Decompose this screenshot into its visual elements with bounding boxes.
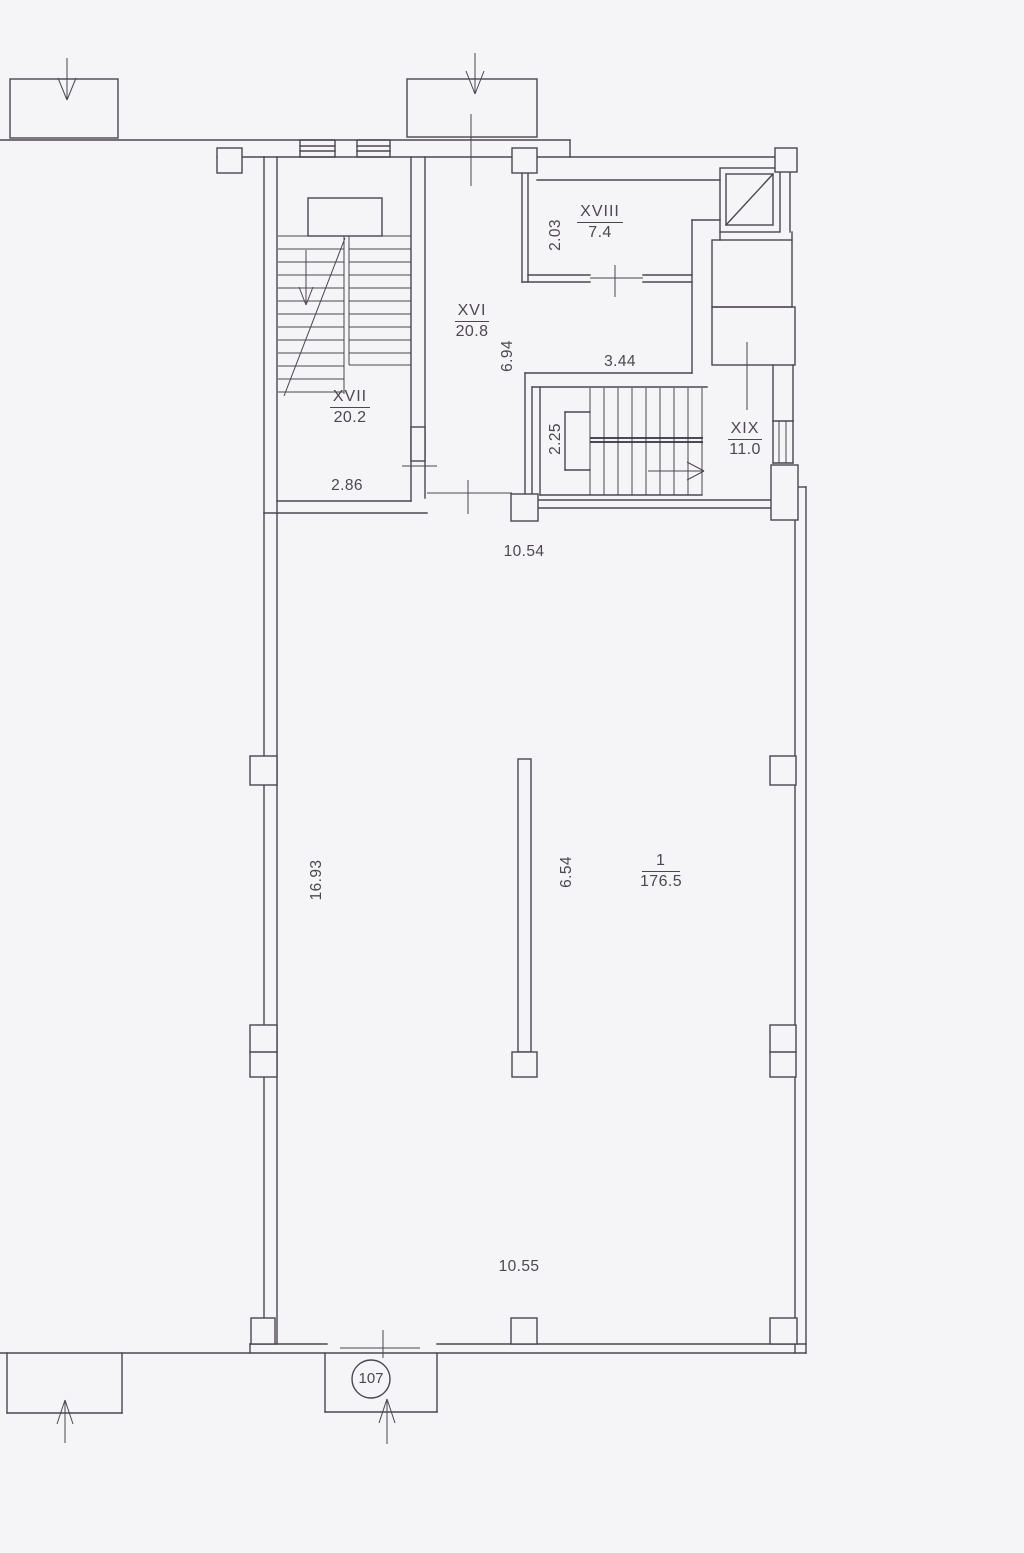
floor-plan: XVI 20.8 XVII 20.2 XVIII 7.4 XIX 11.0 1 …: [0, 0, 1024, 1553]
room-number: XVI: [455, 302, 490, 322]
window-hatch-left: [300, 140, 335, 157]
interior-partition: [512, 759, 537, 1077]
room-label-xix: XIX 11.0: [713, 420, 777, 459]
entry-arrow-up-icon: [57, 1400, 73, 1443]
room-area: 11.0: [713, 441, 777, 459]
dimension-6-94: 6.94: [499, 328, 517, 384]
unit-number-label: 107: [351, 1370, 391, 1387]
room-number: XVII: [330, 388, 370, 408]
entrance-porch-107: [325, 1330, 437, 1444]
dimension-10-54: 10.54: [496, 543, 552, 561]
dimension-2-25: 2.25: [547, 411, 565, 467]
stair-treads-left-flight: [278, 236, 344, 392]
main-hall-walls: [0, 487, 806, 1353]
door-opening: [411, 427, 425, 461]
room-number: XIX: [728, 420, 763, 440]
elevator-shaft: [720, 168, 790, 232]
room-area: 20.2: [318, 409, 382, 427]
dimension-3-44: 3.44: [592, 353, 648, 371]
room-area: 176.5: [629, 873, 693, 891]
top-exterior-wall: [0, 114, 775, 186]
service-shafts: [692, 220, 795, 410]
stair-direction-arrow-down-icon: [299, 250, 313, 305]
stair-direction-arrow-right-icon: [648, 462, 704, 480]
entrance-porch-bottom-left: [7, 1353, 122, 1443]
room-label-1: 1 176.5: [629, 852, 693, 891]
dimension-2-03: 2.03: [547, 207, 565, 263]
entry-arrow-down-icon: [466, 53, 484, 94]
room-area: 7.4: [568, 224, 632, 242]
room-area: 20.8: [440, 323, 504, 341]
dimension-6-54: 6.54: [558, 844, 576, 900]
window-hatch-right: [357, 140, 390, 157]
floor-plan-linework: [0, 0, 1024, 1553]
dimension-10-55: 10.55: [491, 1258, 547, 1276]
stairwell-xvii: [264, 157, 437, 513]
corridor-opening: [427, 480, 512, 514]
dimension-16-93: 16.93: [308, 852, 326, 908]
entry-arrow-up-icon: [379, 1399, 395, 1444]
room-number: 1: [642, 852, 680, 872]
stair-landing: [308, 198, 382, 236]
room-label-xviii: XVIII 7.4: [568, 203, 632, 242]
entrance-porch-top-left: [10, 58, 118, 138]
dimension-2-86: 2.86: [319, 477, 375, 495]
entrance-porch-top-centre: [407, 53, 537, 137]
room-label-xvi: XVI 20.8: [440, 302, 504, 341]
room-number: XVIII: [577, 203, 623, 223]
stair-treads-right-flight: [349, 236, 411, 365]
room-label-xvii: XVII 20.2: [318, 388, 382, 427]
